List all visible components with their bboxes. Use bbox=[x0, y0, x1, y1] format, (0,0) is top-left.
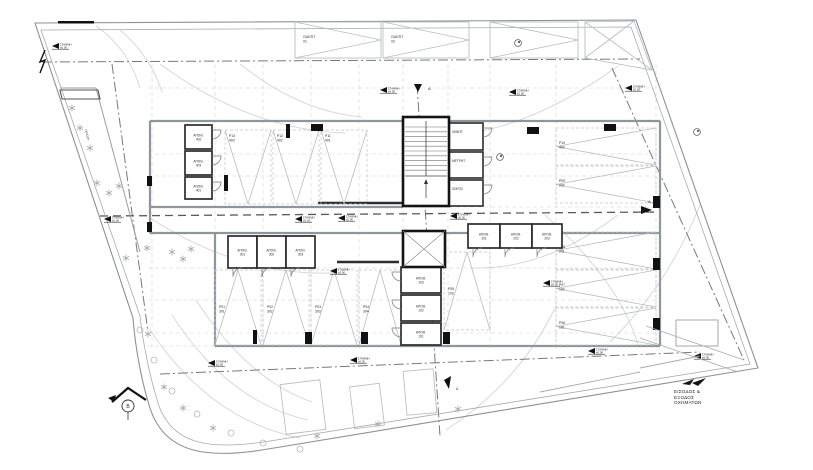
tree-icon bbox=[77, 125, 83, 132]
parking-bay-hatch bbox=[556, 289, 656, 308]
shrub-icon bbox=[297, 446, 303, 452]
parking-bay-hatch bbox=[556, 270, 656, 289]
exterior-bay-outline bbox=[280, 380, 326, 435]
axis-dashdot-line bbox=[42, 59, 640, 62]
entrance-arrow-icon bbox=[692, 378, 706, 386]
symbol-icon bbox=[515, 40, 522, 47]
level-marker-text: ±0.00 bbox=[338, 271, 345, 275]
door-swing bbox=[473, 248, 482, 257]
parking-spot-number-label: 402 bbox=[277, 139, 283, 143]
parking-spot-number-label: 202 bbox=[559, 184, 565, 188]
storage-room-number: 401 bbox=[196, 189, 202, 193]
symbol-icon-dot bbox=[500, 155, 502, 157]
tree-center bbox=[125, 257, 127, 259]
axis-dashdot-line bbox=[160, 352, 700, 374]
shrub-icon bbox=[228, 430, 234, 436]
storage-room-number: 103 bbox=[418, 281, 424, 285]
tree-center bbox=[147, 333, 149, 335]
section-letter: A bbox=[456, 387, 459, 391]
level-marker-arrow-icon bbox=[295, 216, 302, 222]
tree-icon bbox=[188, 246, 194, 253]
utility-room bbox=[449, 123, 492, 150]
parking-spot-id-label: P01 bbox=[219, 305, 225, 309]
entrance-ramp-line bbox=[540, 356, 700, 392]
parking-spot bbox=[556, 308, 656, 345]
level-marker-text: ±0.00 bbox=[60, 46, 67, 50]
tree-center bbox=[182, 258, 184, 260]
site-boundary-outer bbox=[35, 20, 758, 453]
tree-icon bbox=[161, 384, 167, 391]
tree-center bbox=[182, 407, 184, 409]
planter-label: ΠΡΑΣΙΑ bbox=[83, 129, 90, 142]
tree-center bbox=[96, 182, 98, 184]
door-swing bbox=[505, 248, 514, 257]
vehicle-entrance-note-line: ΟΧΗΜΑΤΩΝ bbox=[674, 400, 744, 406]
exterior-bay-outline bbox=[350, 383, 385, 428]
door-swing bbox=[212, 182, 221, 191]
level-marker-text: ±0.00 bbox=[596, 351, 603, 355]
guest-spot-number-label: 02 bbox=[391, 40, 395, 44]
guest-bay-hatch bbox=[295, 40, 381, 58]
storage-room-number: 102 bbox=[418, 309, 424, 313]
tree-icon bbox=[210, 425, 216, 432]
level-marker-arrow-icon bbox=[350, 357, 357, 363]
axis-dashdot-line bbox=[112, 64, 148, 332]
parking-spot-id-label: P06 bbox=[559, 321, 565, 325]
symbol-icon bbox=[694, 129, 701, 136]
column-mark bbox=[224, 175, 228, 191]
exterior-bay-outline bbox=[403, 369, 437, 415]
entrance-ramp-box bbox=[676, 320, 718, 346]
utility-room bbox=[449, 152, 492, 178]
parking-spot-number-label: 201 bbox=[559, 250, 565, 254]
guest-bay-outline bbox=[295, 22, 381, 58]
guest-spot-label: GUEST bbox=[303, 35, 316, 39]
tree-icon bbox=[145, 331, 151, 338]
level-marker-text: ±0.00 bbox=[702, 356, 709, 360]
tree-center bbox=[377, 423, 379, 425]
parking-spot bbox=[556, 166, 656, 203]
section-letter: A bbox=[428, 86, 431, 91]
storage-room-number: 201 bbox=[481, 237, 487, 241]
shrub-icon bbox=[151, 357, 157, 363]
parking-bay-outline bbox=[556, 166, 656, 203]
level-marker-text: ±0.00 bbox=[458, 216, 465, 220]
section-letter: A bbox=[648, 199, 651, 204]
parking-bay-outline bbox=[556, 232, 656, 269]
main-axis-dashed-line bbox=[100, 212, 660, 216]
tree-icon bbox=[87, 145, 93, 152]
floor-plan-page: ΠΡΑΣΙΑP13403P12402P11401P01301P02302P033… bbox=[0, 0, 813, 470]
tree-center bbox=[457, 408, 459, 410]
column-mark bbox=[653, 318, 660, 330]
column-mark bbox=[653, 196, 660, 208]
level-marker-text: ±0.00 bbox=[551, 283, 558, 287]
parking-spot-number-label: 102 bbox=[559, 288, 565, 292]
storage-room-number: 203 bbox=[544, 237, 550, 241]
parking-spot-number-label: 301 bbox=[219, 310, 225, 314]
parking-spot-id-label: P13 bbox=[229, 134, 235, 138]
symbol-icon bbox=[497, 154, 504, 161]
tree-icon bbox=[180, 256, 186, 263]
guest-parking-spot bbox=[383, 22, 469, 58]
parking-bay-hatch bbox=[556, 147, 656, 166]
tree-center bbox=[108, 192, 110, 194]
shrub-icon bbox=[260, 440, 266, 446]
door-swing bbox=[212, 130, 221, 139]
shrub-icon bbox=[169, 388, 175, 394]
parking-bay-hatch bbox=[344, 130, 367, 204]
parking-spot bbox=[556, 128, 656, 165]
storage-room-number: 202 bbox=[513, 237, 519, 241]
door-swing bbox=[483, 185, 492, 194]
parking-bay-outline bbox=[556, 128, 656, 165]
parking-spot-id-label: P02 bbox=[267, 305, 273, 309]
door-swing bbox=[392, 300, 401, 309]
utility-room-walls bbox=[449, 123, 483, 150]
column-mark bbox=[311, 124, 323, 131]
section-letter: B bbox=[126, 404, 130, 410]
parking-bay-hatch bbox=[296, 130, 319, 204]
level-marker-text: ±0.00 bbox=[358, 360, 365, 364]
door-swing bbox=[212, 156, 221, 165]
section-marker bbox=[444, 376, 451, 389]
column-mark bbox=[361, 332, 368, 344]
storage-room-number: 301 bbox=[240, 253, 246, 257]
guest-parking-spot bbox=[295, 22, 381, 58]
tree-center bbox=[190, 248, 192, 250]
column-mark bbox=[147, 176, 152, 186]
storage-room-number: 403 bbox=[196, 164, 202, 168]
drive-sweep-arc bbox=[96, 26, 140, 88]
drive-sweep-arc bbox=[446, 306, 556, 430]
column-mark bbox=[653, 258, 660, 270]
level-marker-text: ±0.00 bbox=[303, 219, 310, 223]
parking-spot-number-label: 401 bbox=[325, 139, 331, 143]
level-marker-text: ±0.00 bbox=[346, 218, 353, 222]
guest-bay-hatch bbox=[383, 40, 469, 58]
shrub-icon bbox=[194, 411, 200, 417]
level-marker-arrow-icon bbox=[52, 43, 59, 49]
tree-center bbox=[163, 386, 165, 388]
parking-spot-number-label: 400 bbox=[559, 146, 565, 150]
parking-spot-id-label: P03 bbox=[315, 305, 321, 309]
level-marker-arrow-icon bbox=[543, 280, 550, 286]
symbol-icon-dot bbox=[697, 130, 699, 132]
planter-box bbox=[60, 90, 100, 99]
tree-icon bbox=[69, 105, 75, 112]
guest-spot-number-label: 01 bbox=[303, 40, 307, 44]
parking-spot-number-label: 302 bbox=[267, 310, 273, 314]
parking-spot-id-label: P04 bbox=[363, 305, 369, 309]
parking-bay-hatch bbox=[556, 308, 656, 327]
drive-sweep-arc bbox=[196, 300, 312, 402]
column-mark bbox=[286, 124, 290, 138]
tree-icon bbox=[169, 249, 175, 256]
level-marker-text: ±0.00 bbox=[517, 92, 524, 96]
tree-center bbox=[212, 427, 214, 429]
parking-bay-hatch bbox=[556, 166, 656, 185]
level-marker-text: ±0.00 bbox=[216, 363, 223, 367]
parking-spot-id-label: P09 bbox=[559, 179, 565, 183]
parking-bay-hatch bbox=[556, 251, 656, 270]
storage-room-number: 303 bbox=[298, 253, 304, 257]
level-marker-text: ±0.00 bbox=[388, 90, 395, 94]
parking-bay-outline bbox=[556, 308, 656, 345]
tree-center bbox=[89, 147, 91, 149]
entrance-ramp-line bbox=[640, 338, 738, 372]
tree-icon bbox=[106, 190, 112, 197]
column-mark bbox=[147, 222, 152, 232]
level-marker-arrow-icon bbox=[588, 348, 595, 354]
tree-icon bbox=[144, 245, 150, 252]
parking-bay-hatch bbox=[556, 232, 656, 251]
parking-spot-number-label: 103 bbox=[448, 292, 454, 296]
guest-spot-label: GUEST bbox=[391, 35, 404, 39]
parking-spot-id-label: P05 bbox=[448, 287, 454, 291]
level-marker-arrow-icon bbox=[625, 85, 632, 91]
parking-spot-id-label: P11 bbox=[325, 134, 331, 138]
tree-center bbox=[79, 127, 81, 129]
parking-bay-outline bbox=[556, 270, 656, 307]
tree-center bbox=[171, 251, 173, 253]
section-arrow-icon bbox=[444, 376, 451, 389]
parking-bay-hatch bbox=[238, 270, 261, 345]
column-mark bbox=[305, 332, 312, 344]
parking-spot-number-label: 403 bbox=[229, 139, 235, 143]
parking-bay-hatch bbox=[467, 252, 490, 330]
accessible-bay-hatch bbox=[490, 40, 578, 58]
guest-bay-outline bbox=[383, 22, 469, 58]
parking-bay-hatch bbox=[556, 185, 656, 204]
parking-bay-hatch bbox=[248, 130, 271, 204]
axis-dashdot-line bbox=[612, 68, 744, 360]
accessible-bay-hatch bbox=[490, 22, 578, 40]
drive-sweep-arc bbox=[172, 315, 308, 420]
level-marker-text: ±0.00 bbox=[633, 88, 640, 92]
door-swing bbox=[392, 272, 401, 281]
utility-room-walls bbox=[449, 180, 483, 206]
utility-room-label: ΧΩΡΟΣ bbox=[452, 187, 463, 191]
column-mark bbox=[604, 124, 616, 131]
corner-bay-hatch bbox=[585, 21, 634, 58]
parking-spot-id-label: P12 bbox=[277, 134, 283, 138]
column-mark bbox=[527, 127, 539, 134]
drive-sweep-arc bbox=[240, 64, 362, 117]
level-marker-text: ±0.00 bbox=[112, 219, 119, 223]
tree-center bbox=[118, 185, 120, 187]
tree-center bbox=[146, 247, 148, 249]
parking-bay-hatch bbox=[380, 270, 401, 345]
door-swing bbox=[483, 157, 492, 166]
drive-sweep-arc bbox=[160, 64, 345, 133]
utility-room-label: ΛΕΒΗΤ. bbox=[452, 130, 463, 134]
utility-room bbox=[449, 180, 492, 206]
parking-spot-id-label: P10 bbox=[559, 141, 565, 145]
column-mark bbox=[253, 330, 257, 344]
tree-icon bbox=[180, 405, 186, 412]
tree-icon bbox=[123, 255, 129, 262]
boundary-wall-bar bbox=[58, 21, 94, 24]
storage-room-number: 302 bbox=[269, 253, 275, 257]
storage-room-number: 101 bbox=[418, 335, 424, 339]
parking-spot-number-label: 304 bbox=[363, 310, 369, 314]
storage-room-number: 402 bbox=[196, 138, 202, 142]
utility-room-walls bbox=[449, 152, 483, 178]
symbol-icon-dot bbox=[518, 41, 520, 43]
tree-center bbox=[316, 435, 318, 437]
boundary-mark-icon bbox=[40, 50, 45, 73]
parking-spot-number-label: 101 bbox=[559, 326, 565, 330]
vehicle-entrance-note: ΕΙΣΟΔΟΣ & ΕΞΟΔΟΣ ΟΧΗΜΑΤΩΝ bbox=[674, 389, 744, 406]
parking-spot-number-label: 303 bbox=[315, 310, 321, 314]
corner-bay-hatch bbox=[585, 22, 652, 70]
parking-bay-hatch bbox=[334, 270, 357, 345]
parking-bay-hatch bbox=[556, 327, 656, 346]
parking-spot bbox=[556, 232, 656, 269]
level-marker-arrow-icon bbox=[338, 215, 345, 221]
level-marker-arrow-icon bbox=[509, 89, 516, 95]
parking-spot bbox=[556, 270, 656, 307]
utility-room-label: ΜΕΤΡΗΤ. bbox=[452, 159, 466, 163]
tree-center bbox=[71, 107, 73, 109]
column-mark bbox=[443, 332, 450, 344]
